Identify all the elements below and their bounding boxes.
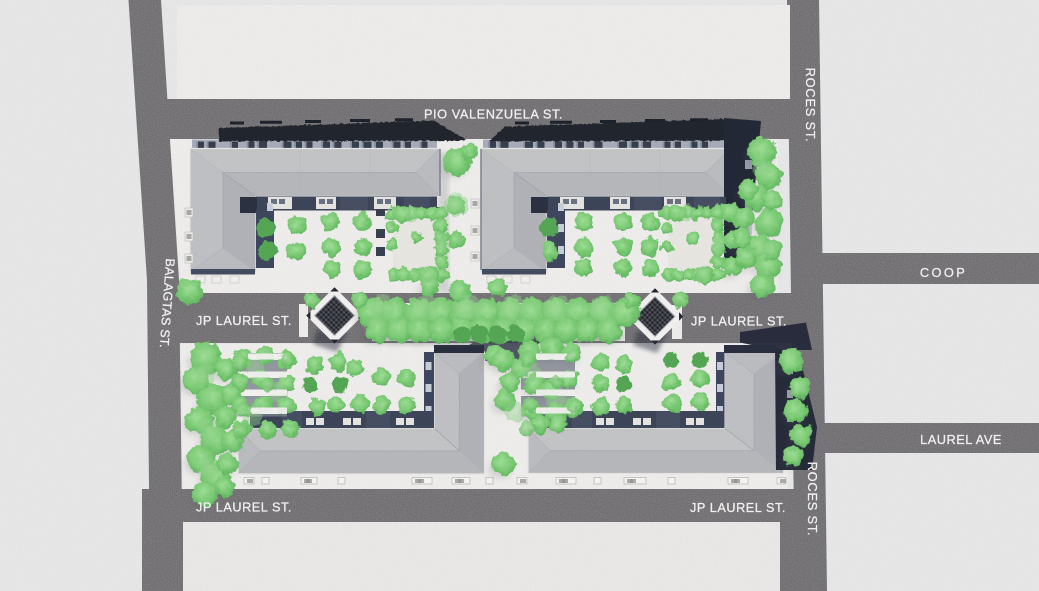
svg-text:LAUREL AVE: LAUREL AVE [920,432,1002,447]
svg-text:JP LAUREL ST.: JP LAUREL ST. [690,501,786,515]
svg-text:JP LAUREL ST.: JP LAUREL ST. [196,314,292,328]
svg-text:PIO VALENZUELA ST.: PIO VALENZUELA ST. [424,107,563,122]
svg-text:JP LAUREL ST.: JP LAUREL ST. [196,501,292,515]
svg-text:ROCES ST.: ROCES ST. [805,462,820,537]
svg-text:JP LAUREL ST.: JP LAUREL ST. [691,314,787,328]
svg-text:COOP: COOP [920,265,967,280]
svg-text:ROCES ST.: ROCES ST. [803,68,818,143]
